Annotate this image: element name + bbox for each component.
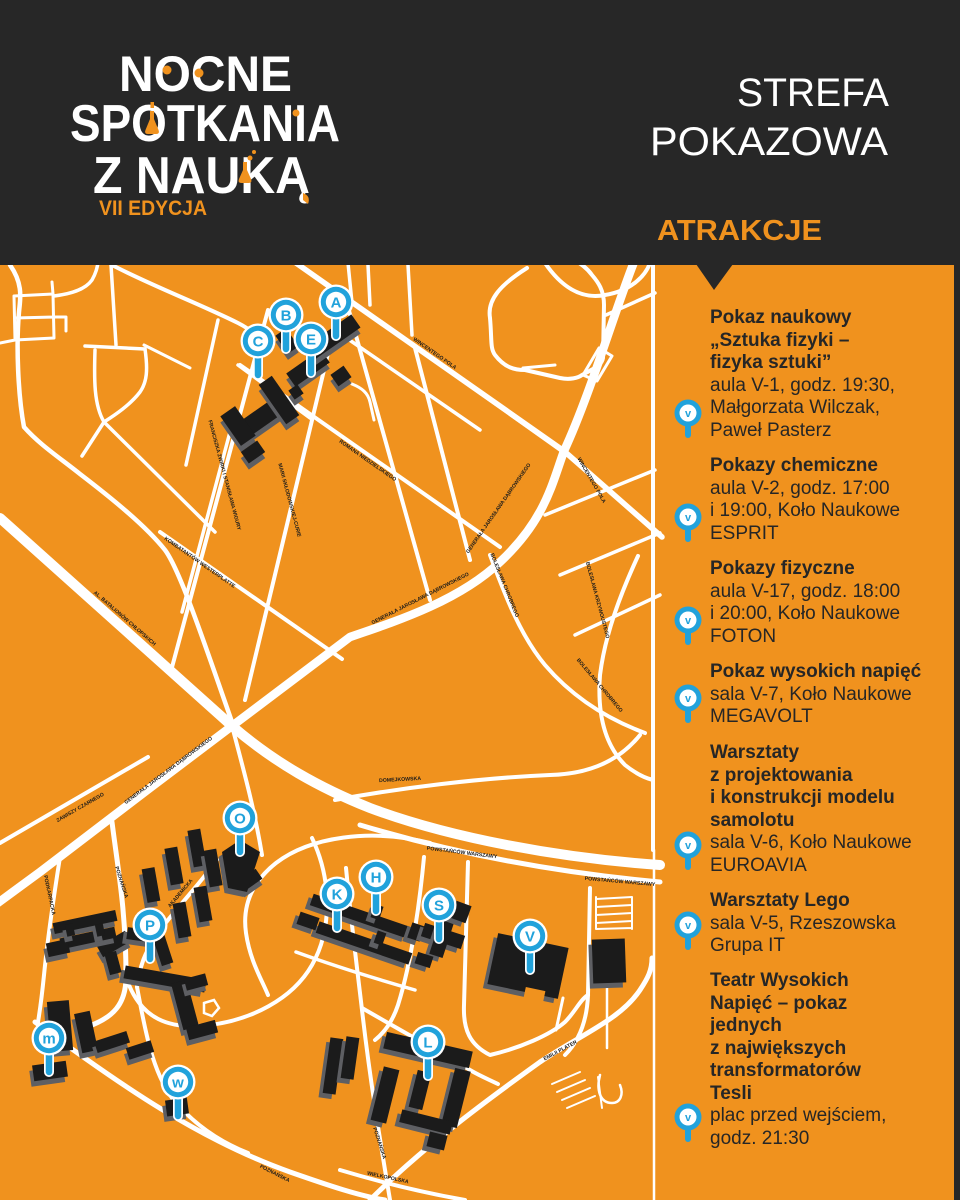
svg-text:v: v (685, 512, 692, 524)
svg-text:POKAZOWA: POKAZOWA (650, 120, 888, 164)
svg-text:L: L (423, 1035, 432, 1052)
svg-text:SPOTKANIA: SPOTKANIA (70, 95, 340, 153)
svg-text:B: B (281, 308, 292, 325)
svg-text:w: w (171, 1075, 184, 1092)
svg-text:NOCNE: NOCNE (119, 46, 292, 102)
svg-text:v: v (685, 408, 692, 420)
svg-text:H: H (371, 870, 382, 887)
svg-text:STREFA: STREFA (737, 71, 889, 115)
svg-text:C: C (253, 334, 264, 351)
svg-text:v: v (685, 693, 692, 705)
svg-text:v: v (685, 615, 692, 627)
svg-text:P: P (145, 918, 155, 935)
svg-text:v: v (685, 1112, 692, 1124)
svg-text:S: S (434, 898, 444, 915)
svg-text:m: m (42, 1031, 55, 1048)
svg-text:ATRAKCJE: ATRAKCJE (657, 215, 822, 247)
svg-text:V: V (525, 929, 535, 946)
svg-text:O: O (234, 811, 246, 828)
svg-text:K: K (332, 887, 343, 904)
svg-text:v: v (685, 840, 692, 852)
svg-text:A: A (331, 295, 342, 312)
svg-text:E: E (306, 332, 316, 349)
svg-text:v: v (685, 920, 692, 932)
svg-text:VII EDYCJA: VII EDYCJA (99, 197, 207, 220)
